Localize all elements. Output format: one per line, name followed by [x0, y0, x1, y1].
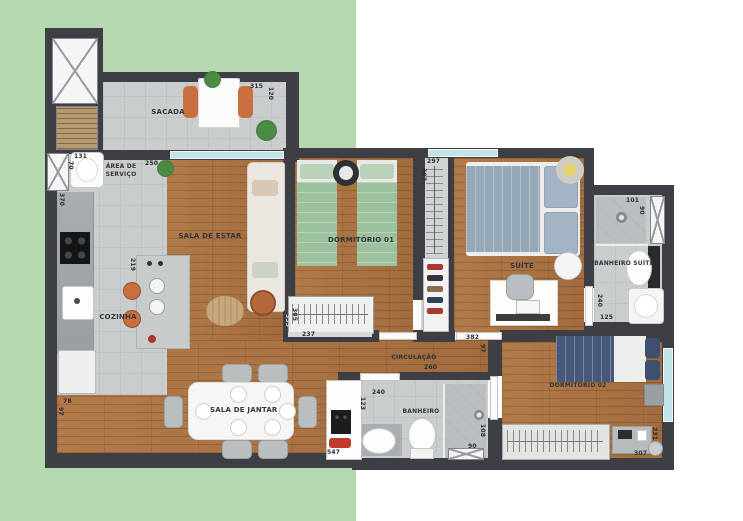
stool [648, 441, 663, 456]
dim-sacada-width: 315 [250, 84, 263, 90]
dim-cozinha-wall: 370 [58, 193, 64, 206]
door-leaf-banheiro [360, 373, 400, 381]
dim-dorm1-wardrobe-depth: 305 [291, 308, 297, 321]
dim-jantar-width: 547 [327, 450, 340, 456]
plant [256, 120, 277, 141]
plate [264, 419, 281, 436]
balcony-table [198, 78, 240, 128]
double-bed-duvet [466, 166, 540, 252]
wall-left-outer [45, 150, 57, 468]
wall-dorm2-left-upper [488, 340, 502, 376]
dim-dorm1-wardrobe-width: 237 [302, 332, 315, 338]
stool [554, 252, 582, 280]
dining-chair [258, 364, 288, 383]
utility-panel [331, 410, 351, 434]
dim-dorm1-wall: 335 [284, 314, 290, 327]
dim-area-servico-width: 131 [74, 154, 87, 160]
floor-drain [448, 448, 484, 460]
bathtub-basin [634, 294, 658, 318]
shoes [427, 275, 443, 281]
dim-banheiro-width: 260 [424, 365, 437, 371]
room-label-sacada: SACADA [140, 108, 196, 117]
shower-head-icon [474, 410, 484, 420]
bar-stool [123, 282, 141, 300]
room-label-banheiro: BANHEIRO [398, 408, 444, 416]
bathroom-sink [626, 250, 652, 286]
sofa-pillow [252, 180, 278, 196]
wardrobe-sill [288, 332, 372, 337]
dim-banheiro-suite-tub: 125 [600, 315, 613, 321]
room-label-suite: SUÍTE [502, 262, 542, 271]
dim-sala-door: 250 [145, 161, 158, 167]
room-label-dormitorio-01: DORMITÓRIO 01 [328, 236, 392, 245]
laundry-tank-basin [76, 158, 98, 182]
closet-rail [434, 166, 435, 254]
balcony-chair [238, 86, 253, 118]
plate [230, 419, 247, 436]
duct-shaft [650, 196, 665, 244]
bed-pillow [300, 164, 334, 179]
kitchen-counter [57, 192, 94, 354]
dim-closet-depth: 307 [420, 168, 426, 181]
wall-suite-divider-upper [584, 148, 594, 288]
dim-dorm2-desk: 231 [651, 427, 657, 440]
dim-dorm2-width: 307 [634, 451, 647, 457]
door-leaf-banheiro-suite [585, 286, 593, 326]
dim-banheiro-shower-width: 90 [468, 444, 477, 450]
dim-banheiro-suite-shower: 90 [638, 206, 644, 215]
dim-suite-width: 382 [466, 335, 479, 341]
room-label-sala-jantar: SALA DE JANTAR [210, 406, 270, 415]
island-accessory [148, 335, 156, 343]
plant [157, 160, 174, 177]
dim-closet-width: 297 [427, 159, 440, 165]
shoes [427, 308, 443, 314]
room-label-banheiro-suite: BANHEIRO SUÍTE [594, 260, 654, 268]
shower-glass [443, 384, 445, 458]
plate [264, 386, 281, 403]
dim-suite-passage: 97 [479, 344, 485, 353]
bed-pillow [645, 360, 660, 380]
nightstand-top [339, 166, 353, 180]
dim-area-servico-depth: 70 [67, 161, 73, 170]
desk-chair [506, 274, 534, 300]
dim-banheiro-inner: 240 [372, 390, 385, 396]
shoes [427, 264, 443, 270]
dim-banheiro-shower-depth: 108 [479, 424, 485, 437]
dining-chair [298, 396, 317, 428]
dim-banheiro-door: 123 [359, 397, 365, 410]
room-label-circulacao: CIRCULAÇÃO [382, 354, 446, 362]
shower-head-icon [616, 212, 627, 223]
dim-jantar-step-depth: 97 [57, 407, 63, 416]
dining-chair [222, 364, 252, 383]
dorm2-window [663, 348, 673, 422]
nightstand [644, 384, 664, 406]
bathroom-sink [362, 428, 396, 454]
shower-zone [444, 384, 486, 458]
floorplan-canvas: SACADA ÁREA DE SERVIÇO COZINHA SALA DE E… [0, 0, 743, 521]
dim-banheiro-suite-width: 101 [626, 198, 639, 204]
bed-duvet [556, 336, 614, 382]
dim-sacada-depth: 120 [267, 87, 273, 100]
island-knob [158, 261, 163, 266]
wardrobe-rail [507, 441, 603, 442]
fridge [58, 350, 96, 394]
duct-shaft [47, 153, 69, 191]
bed-sheet [612, 336, 646, 382]
shower-glass [596, 244, 648, 246]
dim-jantar-step: 78 [63, 399, 72, 405]
room-label-dormitorio-02: DORMITÓRIO 02 [544, 382, 612, 390]
room-label-area-servico: ÁREA DE SERVIÇO [96, 163, 146, 179]
side-table [250, 290, 276, 316]
shoes [427, 297, 443, 303]
dining-chair [222, 440, 252, 459]
desk-paper [637, 430, 647, 441]
laptop [516, 300, 540, 314]
bed-pillow [645, 338, 660, 358]
bed-duvet [297, 182, 337, 266]
wall-sacada-top [96, 72, 298, 82]
room-label-sala-estar: SALA DE ESTAR [178, 232, 242, 241]
balcony-sliding-door-window [170, 151, 284, 159]
stairs [56, 106, 98, 150]
lamp-shade [564, 164, 576, 176]
plate [230, 386, 247, 403]
bed-duvet [357, 182, 397, 266]
room-label-cozinha: COZINHA [92, 313, 144, 322]
dim-cozinha-island: 219 [129, 258, 135, 271]
dining-chair [164, 396, 183, 428]
kitchen-faucet [74, 298, 80, 304]
dim-banheiro-suite-depth: 240 [596, 294, 602, 307]
bed-pillow [360, 164, 394, 179]
plant [204, 71, 221, 88]
wall-banheiro-top-east [398, 372, 490, 380]
laptop [618, 430, 632, 439]
fire-extinguisher [329, 438, 351, 448]
cooktop [60, 232, 90, 264]
shoes [427, 286, 443, 292]
elevator-shaft [52, 38, 98, 104]
door-leaf-dorm1 [379, 332, 417, 340]
island-sink [149, 299, 165, 315]
island-sink [149, 278, 165, 294]
dining-chair [258, 440, 288, 459]
island-knob [147, 261, 152, 266]
toilet-tank [410, 448, 434, 459]
plate [279, 403, 296, 420]
pouf [206, 296, 244, 326]
door-leaf-dorm2 [490, 376, 498, 420]
wardrobe-rail [292, 314, 368, 315]
sofa-pillow [252, 262, 278, 278]
toilet [408, 418, 436, 452]
bed-pillow [544, 212, 578, 254]
bedroom-window [428, 149, 498, 157]
desk-shelf [496, 314, 550, 321]
wall-bottom-left [45, 453, 360, 468]
